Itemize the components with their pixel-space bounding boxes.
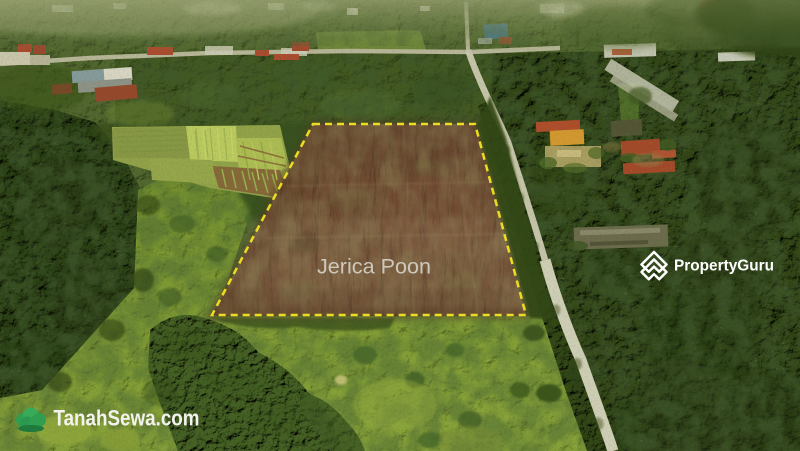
svg-text:TanahSewa.com: TanahSewa.com	[54, 406, 200, 431]
svg-text:Jerica Poon: Jerica Poon	[317, 255, 431, 279]
svg-text:PropertyGuru: PropertyGuru	[674, 258, 774, 275]
